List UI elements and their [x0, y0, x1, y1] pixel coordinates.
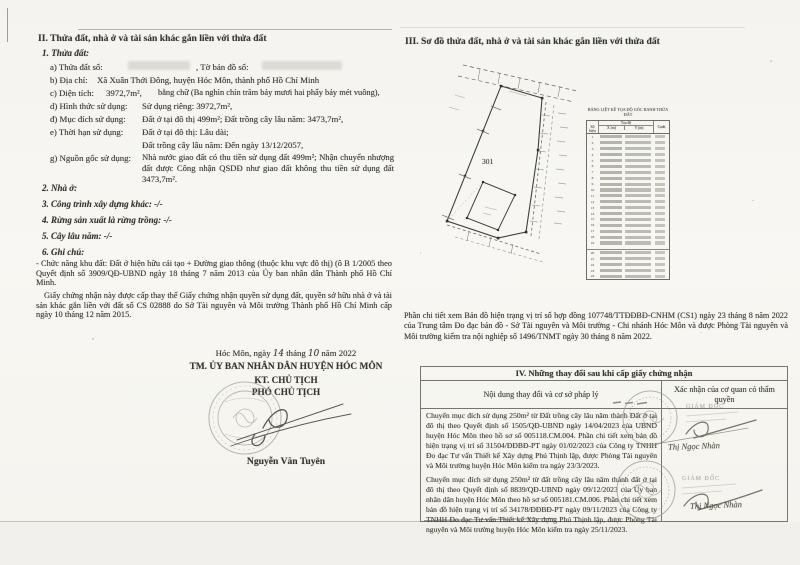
subsection-6-notes: 6. Ghi chú: [42, 247, 84, 257]
coord-value-blur [600, 165, 622, 168]
dateline-suffix: năm 2022 [321, 348, 356, 358]
section3-title: III. Sơ đồ thửa đất, nhà ở và tài sản kh… [405, 36, 660, 47]
coord-row-index: 16 [587, 223, 598, 227]
coord-row-index: 11 [587, 194, 598, 198]
coord-value-blur [655, 218, 665, 221]
signer-name: Nguyễn Văn Tuyên [150, 456, 422, 467]
coord-value-blur [625, 224, 651, 227]
coordinate-table-caption: BẢNG LIỆT KÊ TỌA ĐỘ GÓC RANH THỬA ĐẤT [586, 108, 670, 118]
coord-value-blur [625, 200, 651, 203]
coord-value-blur [600, 153, 622, 156]
coord-row-index: 1 [587, 135, 598, 139]
note-paragraph-1: - Chức năng khu đất: Đất ở hiện hữu cải … [36, 259, 392, 288]
coord-row-index: 14 [587, 212, 598, 216]
coord-value-blur [600, 269, 622, 272]
stamp2-office-text: GIÁM ĐỐC [682, 474, 720, 482]
coord-value-blur [655, 177, 665, 180]
use-term-value-1: Đất ở tại đô thị: Lâu dài; [142, 127, 229, 137]
coord-value-blur [655, 212, 665, 215]
coord-value-blur [600, 224, 622, 227]
dateline-mid: tháng [286, 348, 306, 358]
coord-value-blur [655, 206, 665, 209]
coordinate-table: BẢNG LIỆT KÊ TỌA ĐỘ GÓC RANH THỬA ĐẤT Số… [586, 108, 670, 280]
coord-value-blur [625, 218, 651, 221]
coord-value-blur [600, 141, 622, 144]
coord-row-index: 5 [587, 159, 598, 163]
coord-value-blur [600, 159, 622, 162]
note-paragraph-2: Giấy chứng nhận này được cấp thay thế Gi… [36, 291, 392, 320]
use-form-value: Sử dụng riêng: 3972,7m², [142, 101, 232, 111]
coord-value-blur [600, 251, 622, 254]
coord-value-blur [625, 275, 651, 278]
coord-row-index: 19 [587, 241, 598, 245]
dateline-prefix: Hóc Môn, ngày [216, 348, 271, 358]
coord-value-blur [600, 206, 622, 209]
map-source-note: Phần chi tiết xem Bản đồ hiện trạng vị t… [404, 311, 788, 342]
construction-line [449, 184, 481, 219]
inner-label-smudge [483, 207, 497, 215]
coord-value-blur [600, 147, 622, 150]
coord-value-blur [600, 230, 622, 233]
coord-value-blur [655, 153, 665, 156]
coord-value-blur [625, 251, 651, 254]
use-term-label: e) Thời hạn sử dụng: [50, 127, 123, 137]
coord-value-blur [600, 194, 622, 197]
coord-row-index: 24 [587, 274, 598, 278]
coord-value-blur [655, 194, 665, 197]
inner-subparcel-boundary [467, 182, 515, 230]
section4-col1-label: Nội dung thay đổi và cơ sở pháp lý [483, 390, 598, 399]
use-purpose-value: Đất ở tại đô thị 499m²; Đất trồng cây lâ… [142, 114, 343, 124]
round-seal-icon [209, 382, 281, 454]
coord-value-blur [655, 257, 665, 260]
coord-row-index: 17 [587, 229, 598, 233]
coord-col-point: Số hiệu [587, 121, 599, 133]
registry-seal-2-icon [617, 461, 675, 519]
subsection-2-house: 2. Nhà ở: [42, 183, 77, 193]
dateline-month-handwritten: 10 [308, 349, 319, 359]
use-term-value-2: Đất trồng cây lâu năm: Đến ngày 13/12/20… [142, 140, 303, 150]
coord-row-index: 6 [587, 164, 598, 168]
coord-row-index: 10 [587, 188, 598, 192]
origin-label: g) Nguồn gốc sử dụng: [50, 153, 131, 163]
stamp1-signer-name: Thị Ngọc Nhàn [668, 440, 720, 452]
coord-col-y: Y (m) [625, 126, 653, 130]
coord-value-blur [655, 141, 665, 144]
coord-value-blur [655, 147, 665, 150]
coord-value-blur [600, 257, 622, 260]
coordinate-table-grid: Số hiệu Tọa độ X (m) Y (m) Cạnh 12345678… [586, 120, 670, 281]
parcel-number-on-map: 301 [482, 157, 494, 166]
origin-value: Nhà nước giao đất có thu tiền sử dụng đấ… [142, 152, 394, 185]
coord-value-blur [600, 183, 622, 186]
coord-row-index: 13 [587, 206, 598, 210]
map-sheet-redaction [262, 61, 342, 70]
subsection-5-perennial: 5. Cây lâu năm: -/- [42, 231, 112, 241]
coord-value-blur [655, 188, 665, 191]
subsection-3-constructions: 3. Công trình xây dựng khác: -/- [42, 199, 163, 209]
parcel-boundary [447, 86, 542, 238]
issue-dateline: Hóc Môn, ngày 14 tháng 10 năm 2022 [150, 348, 422, 359]
coord-row-index: 9 [587, 182, 598, 186]
section2-title: II. Thửa đất, nhà ở và tài sản khác gắn … [38, 33, 267, 44]
coord-value-blur [600, 218, 622, 221]
stamp2-signer-name: Thị Ngọc Nhàn [690, 499, 742, 511]
coord-value-blur [655, 224, 665, 227]
coord-col-xy: Tọa độ X (m) Y (m) [599, 121, 654, 133]
right-page-top-rule [400, 27, 745, 28]
coord-row: 20 [587, 249, 669, 256]
coord-value-blur [625, 212, 651, 215]
coord-value-blur [655, 236, 665, 239]
coord-value-blur [600, 177, 622, 180]
coord-row-index: 12 [587, 200, 598, 204]
coord-value-blur [625, 269, 651, 272]
coordinate-table-body: 123456789101112131415161718192021222324 [587, 134, 669, 279]
coord-value-blur [655, 165, 665, 168]
left-page-top-rule [78, 29, 392, 30]
parcel-number-redaction [128, 61, 190, 70]
coord-value-blur [600, 275, 622, 278]
coord-row: 24 [587, 273, 669, 279]
subsection-1-parcel: 1. Thửa đất: [42, 48, 89, 58]
coord-row-index: 18 [587, 235, 598, 239]
coord-row-index: 22 [587, 263, 598, 267]
coord-row-index: 2 [587, 141, 598, 145]
map-sheet-label: , Tờ bản đồ số: [196, 62, 249, 72]
address-label: b) Địa chỉ: [50, 75, 88, 85]
coord-value-blur [600, 171, 622, 174]
area-value: 3972,7m², [106, 88, 142, 98]
coord-value-blur [625, 165, 651, 168]
coord-value-blur [600, 263, 622, 266]
use-form-label: d) Hình thức sử dụng: [50, 101, 127, 111]
dateline-day-handwritten: 14 [273, 349, 284, 359]
coord-value-blur [625, 159, 651, 162]
speck [420, 252, 421, 254]
dimension-smudges-right [554, 113, 568, 224]
parcel-sketch-map: 301 [425, 55, 590, 305]
scanned-certificate-page: II. Thửa đất, nhà ở và tài sản khác gắn … [0, 0, 800, 565]
coord-value-blur [655, 171, 665, 174]
coord-col-edge: Cạnh [654, 121, 669, 133]
stamp1-office-text: GIÁM ĐỐC [686, 402, 724, 410]
stamp2-text-smudge [682, 484, 736, 494]
coord-value-blur [625, 257, 651, 260]
coord-value-blur [625, 230, 651, 233]
use-purpose-label: đ) Mục đích sử dụng: [50, 114, 126, 124]
road-ticks-bottom [467, 231, 513, 254]
coord-row-index: 20 [587, 251, 598, 255]
coord-value-blur [625, 241, 651, 244]
coord-row-index: 23 [587, 269, 598, 273]
speck [92, 338, 94, 340]
address-value: Xã Xuân Thới Đông, huyện Hóc Môn, thành … [97, 75, 319, 85]
coord-value-blur [655, 135, 665, 138]
coord-value-blur [625, 263, 651, 266]
coord-value-blur [625, 135, 651, 138]
coord-value-blur [655, 183, 665, 186]
coord-row-index: 15 [587, 217, 598, 221]
coord-value-blur [655, 241, 665, 244]
coord-value-blur [600, 241, 622, 244]
coord-value-blur [655, 200, 665, 203]
coord-col-x: X (m) [599, 126, 625, 130]
coord-value-blur [625, 153, 651, 156]
inner-corner-markers [466, 181, 516, 231]
subsection-4-forest: 4. Rừng sản xuất là rừng trồng: -/- [42, 215, 172, 225]
area-label: c) Diện tích: [50, 88, 94, 98]
coord-value-blur [625, 171, 651, 174]
coord-row-index: 4 [587, 153, 598, 157]
coord-value-blur [600, 200, 622, 203]
coord-value-blur [600, 212, 622, 215]
coord-value-blur [655, 263, 665, 266]
coord-value-blur [655, 230, 665, 233]
coord-value-blur [655, 251, 665, 254]
road-band-bottom [447, 225, 543, 262]
road-ticks-top [478, 69, 560, 97]
coord-value-blur [625, 206, 651, 209]
coordinate-table-header: Số hiệu Tọa độ X (m) Y (m) Cạnh [587, 121, 669, 134]
speck [770, 60, 772, 62]
coord-value-blur [655, 275, 665, 278]
speck [752, 200, 754, 201]
coord-value-blur [625, 141, 651, 144]
stamp1-text-smudge [686, 412, 738, 422]
coord-row-index: 3 [587, 147, 598, 151]
coord-value-blur [625, 147, 651, 150]
coord-value-blur [625, 188, 651, 191]
coord-value-blur [600, 188, 622, 191]
coord-value-blur [600, 135, 622, 138]
parcel-number-label: a) Thửa đất số: [50, 62, 103, 72]
coord-value-blur [655, 159, 665, 162]
scan-edge-mark [7, 8, 8, 42]
coord-row: 19 [587, 240, 669, 246]
coord-value-blur [625, 236, 651, 239]
coord-value-blur [625, 183, 651, 186]
coord-row-index: 21 [587, 257, 598, 261]
road-band-top [458, 65, 577, 102]
coord-value-blur [655, 269, 665, 272]
coord-value-blur [625, 194, 651, 197]
coord-row-index: 7 [587, 170, 598, 174]
coord-value-blur [625, 177, 651, 180]
area-in-words: bằng chữ (Ba nghìn chín trăm bảy mươi ha… [158, 88, 380, 97]
coord-row-index: 8 [587, 176, 598, 180]
coord-value-blur [600, 236, 622, 239]
upper-label-smudges [449, 91, 527, 110]
registry-seal-1-icon [623, 391, 677, 445]
